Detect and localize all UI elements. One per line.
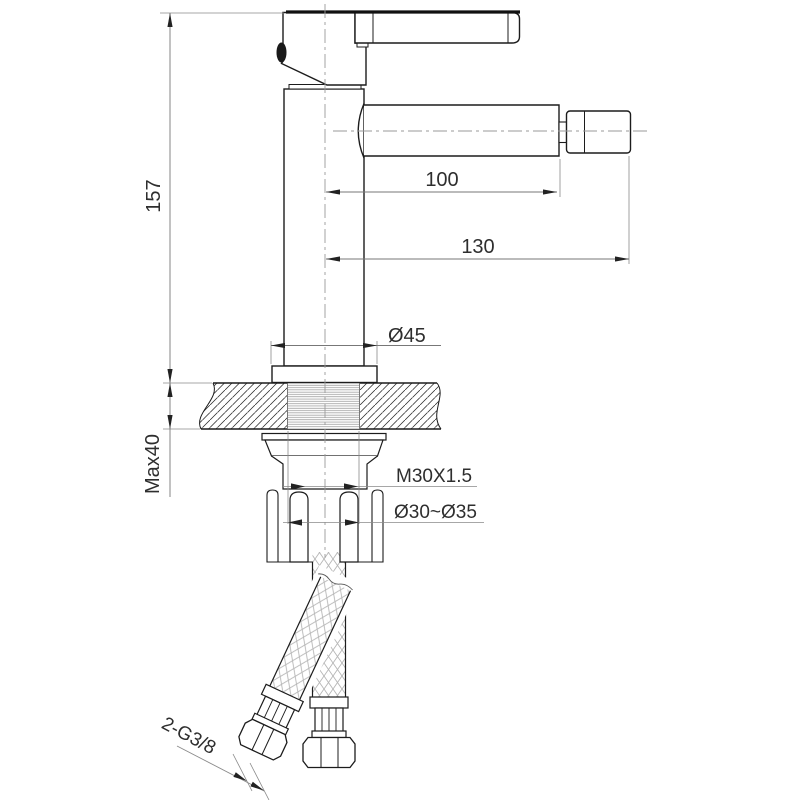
dimension-hole-diameter-text: Ø30~Ø35 bbox=[394, 502, 477, 523]
nut-lug-right bbox=[340, 492, 358, 562]
fitting-vertical-crimp bbox=[310, 697, 348, 708]
spout-fill bbox=[364, 105, 559, 156]
dimension-overall-reach-text: 130 bbox=[461, 236, 494, 258]
nut-collar bbox=[265, 440, 383, 456]
lever-handle bbox=[355, 13, 520, 44]
nut-barrel bbox=[272, 456, 378, 489]
faucet-drawing-svg: 157 Max40 100 130 Ø45 bbox=[0, 0, 800, 800]
dimension-deck-thickness-text: Max40 bbox=[142, 434, 164, 494]
nut-lug-left bbox=[290, 492, 308, 562]
dimension-height-text: 157 bbox=[143, 179, 165, 212]
nut-skirt-right-lip bbox=[372, 490, 383, 562]
countertop bbox=[200, 383, 441, 429]
dimension-shank-thread-text: M30X1.5 bbox=[396, 466, 472, 487]
nut-skirt-left-lip bbox=[267, 490, 278, 562]
aerator-connector bbox=[559, 122, 567, 143]
fitting-vertical-hex-nut bbox=[303, 738, 355, 768]
set-screw bbox=[277, 43, 287, 63]
technical-drawing-canvas: 157 Max40 100 130 Ø45 bbox=[0, 0, 800, 800]
base-flange bbox=[272, 366, 377, 383]
aerator bbox=[567, 111, 631, 153]
threaded-shank bbox=[287, 383, 360, 429]
mounting-washer bbox=[262, 434, 386, 441]
dimension-flange-diameter-text: Ø45 bbox=[388, 325, 426, 347]
dimension-spout-reach-text: 100 bbox=[425, 169, 458, 191]
fitting-vertical-band bbox=[312, 731, 346, 738]
